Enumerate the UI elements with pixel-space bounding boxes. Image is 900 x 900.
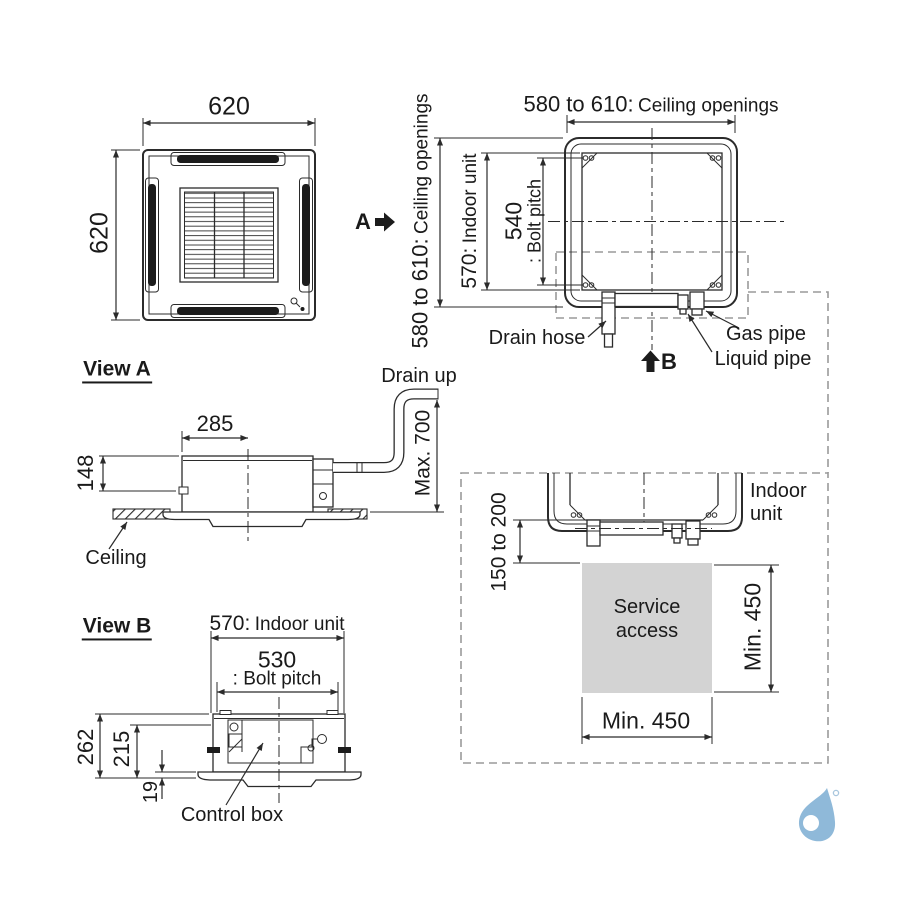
view-a-title-text: View A bbox=[82, 357, 152, 383]
service-access-label: Service access bbox=[592, 595, 702, 643]
ceiling-openings-left-dim-value: 580 to 610: bbox=[408, 238, 433, 348]
top-view-height-dim: 620 bbox=[86, 212, 114, 254]
indoor-unit-dim-value: 570: bbox=[458, 248, 481, 289]
view-b-body-height-dim: 215 bbox=[110, 731, 134, 768]
view-a-height-dim: 148 bbox=[74, 455, 98, 492]
drain-hose-label: Drain hose bbox=[489, 327, 586, 349]
drain-lift-dim: Max. 700 bbox=[411, 410, 434, 496]
view-b-unit-dim-label: Indoor unit bbox=[255, 614, 345, 635]
view-b-arrow-icon bbox=[641, 351, 660, 373]
ceiling-openings-left-dim-label: Ceiling openings bbox=[412, 93, 433, 234]
service-top-gap-dim: 150 to 200 bbox=[487, 492, 510, 591]
cassette-top-view bbox=[111, 118, 315, 320]
view-b-title-text: View B bbox=[82, 614, 152, 640]
water-drop-logo-icon bbox=[799, 788, 839, 841]
indoor-unit-dim: 570: Indoor unit bbox=[458, 153, 482, 288]
bolt-pitch-dim-label: : Bolt pitch bbox=[526, 179, 545, 263]
view-a-direction-label: A bbox=[355, 210, 371, 234]
view-a-arrow-icon bbox=[375, 213, 395, 232]
ceiling-opening-plan bbox=[434, 115, 786, 352]
bolt-pitch-dim: 540: Bolt pitch bbox=[501, 179, 544, 263]
ceiling-openings-top-dim-value: 580 to 610: bbox=[523, 92, 633, 117]
view-a-title: View A bbox=[82, 357, 152, 380]
ceiling-openings-top-dim: 580 to 610: Ceiling openings bbox=[523, 93, 778, 118]
diagram-linework bbox=[0, 0, 900, 900]
liquid-pipe-label: Liquid pipe bbox=[715, 348, 812, 370]
view-a-drawing bbox=[99, 389, 444, 550]
view-b-drawing bbox=[95, 631, 361, 805]
ceiling-openings-left-dim: 580 to 610: Ceiling openings bbox=[409, 93, 434, 348]
view-b-bolt-dim-label: : Bolt pitch bbox=[233, 670, 322, 691]
top-view-width-dim: 620 bbox=[208, 93, 250, 121]
control-box-label: Control box bbox=[181, 804, 283, 826]
view-a-width-dim: 285 bbox=[197, 412, 234, 436]
bolt-pitch-dim-value: 540 bbox=[501, 179, 525, 263]
ceiling-openings-top-dim-label: Ceiling openings bbox=[638, 96, 779, 117]
service-indoor-unit-label: Indoor unit bbox=[750, 480, 816, 526]
ceiling-label: Ceiling bbox=[85, 547, 146, 569]
service-right-dim: Min. 450 bbox=[740, 583, 765, 671]
view-b-total-height-dim: 262 bbox=[74, 729, 98, 766]
view-b-unit-dim-value: 570: bbox=[209, 612, 250, 635]
view-b-direction-label: B bbox=[661, 350, 677, 374]
installation-diagram: 620 620 A 580 to 610: Ceiling openings 5… bbox=[0, 0, 900, 900]
view-b-title: View B bbox=[82, 614, 152, 637]
view-b-panel-height-dim: 19 bbox=[140, 781, 162, 803]
indoor-unit-dim-label: Indoor unit bbox=[460, 153, 481, 243]
service-bottom-dim: Min. 450 bbox=[602, 708, 690, 733]
drain-up-label: Drain up bbox=[381, 365, 457, 387]
view-b-unit-dim: 570: Indoor unit bbox=[209, 612, 344, 636]
gas-pipe-label: Gas pipe bbox=[726, 323, 806, 345]
